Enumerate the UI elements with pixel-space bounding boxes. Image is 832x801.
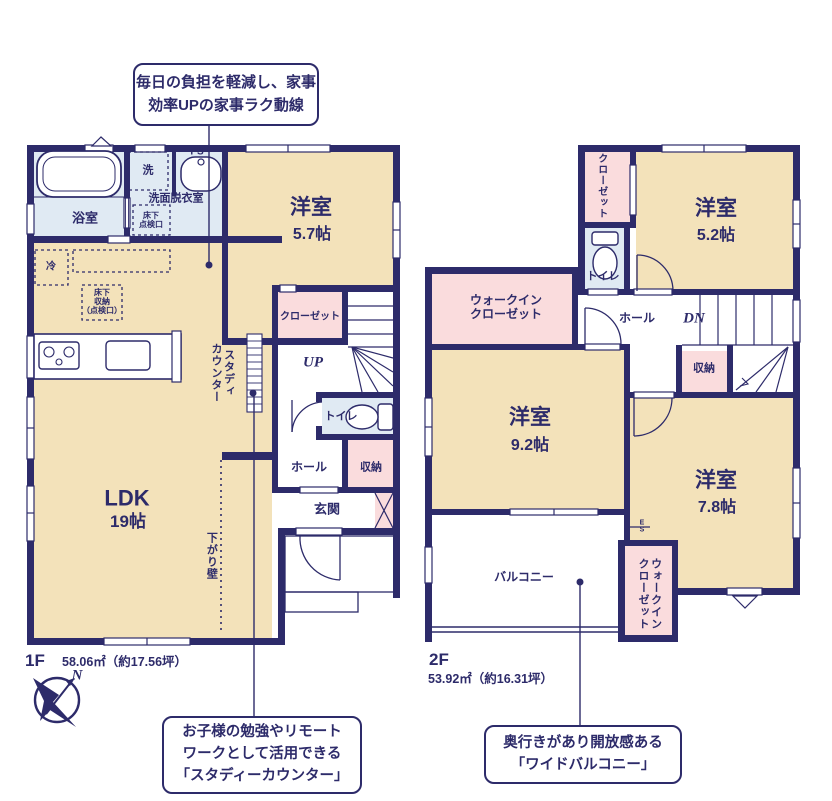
bedroom52-label: 洋室: [695, 197, 737, 221]
callout-study-line2: ワークとして活用できる: [183, 744, 342, 766]
compass-north-label: N: [72, 667, 83, 684]
underfloor-storage-label: 床下 収納 （点検口）: [82, 288, 122, 316]
floor2-name: 2F: [429, 650, 449, 670]
callout-housework-line2: 効率UPの家事ラク動線: [148, 95, 304, 118]
ldk-label: LDK: [104, 485, 149, 510]
underfloor-access-label: 床下 点検口: [139, 211, 163, 229]
callout-housework-line1: 毎日の負担を軽減し、家事: [136, 72, 316, 95]
storage1f-label: 収納: [360, 462, 382, 475]
floor1-stairs: [348, 306, 393, 392]
callout-balcony-line2: 「ワイドバルコニー」: [511, 755, 656, 777]
storage2f-label: 収納: [693, 363, 715, 376]
study-counter-label: スタディ カウンター: [209, 343, 234, 403]
stairs-dn-label: DN: [683, 310, 705, 327]
callout-study-line3: 「スタディーカウンター」: [176, 766, 349, 788]
wic-label: ウォークイン クローゼット: [470, 294, 542, 322]
callout-balcony-line1: 奥行きがあり開放感ある: [503, 733, 663, 755]
toilet2f-label: トイレ: [587, 271, 620, 284]
ps-label: PS: [190, 146, 203, 158]
callout-housework: 毎日の負担を軽減し、家事 効率UPの家事ラク動線: [133, 63, 319, 126]
bedroom52-size: 5.2帖: [697, 227, 735, 245]
hall2f-label: ホール: [619, 312, 655, 326]
bedroom57-label: 洋室: [290, 196, 332, 220]
bedroom78-size: 7.8帖: [698, 499, 736, 517]
callout-wide-balcony: 奥行きがあり開放感ある 「ワイドバルコニー」: [484, 725, 682, 784]
ldk-size: 19帖: [110, 512, 146, 532]
hall1f-label: ホール: [291, 461, 327, 475]
compass-icon: [33, 678, 79, 727]
lowered-wall-label: 下がり壁: [205, 532, 218, 580]
bath-label: 浴室: [72, 212, 98, 227]
laundry-room-label: 洗面脱衣室: [149, 193, 204, 206]
bedroom92-size: 9.2帖: [511, 437, 549, 455]
callout-study-line1: お子様の勉強やリモート: [182, 722, 342, 744]
closet1f-label: クローゼット: [280, 311, 340, 323]
floor1-name: 1F: [25, 651, 45, 671]
floor-plan-graphics: [0, 0, 832, 801]
fridge-label: 冷: [46, 261, 56, 273]
stairs-up-label: UP: [303, 354, 323, 371]
balcony-label: バルコニー: [494, 571, 554, 585]
bedroom92-label: 洋室: [509, 406, 551, 430]
floor2-area: 53.92㎡（約16.31坪）: [428, 672, 553, 686]
bedroom57-size: 5.7帖: [293, 226, 331, 244]
callout-study-counter: お子様の勉強やリモート ワークとして活用できる 「スタディーカウンター」: [162, 716, 362, 794]
wic2-label: ウォークイン クローゼット: [636, 558, 661, 630]
entrance-label: 玄関: [314, 503, 340, 518]
es-label: E S: [640, 520, 645, 535]
bedroom78-label: 洋室: [695, 469, 737, 493]
toilet1f-label: トイレ: [325, 411, 358, 424]
floor-plan-page: PS 洗 洗面脱衣室 床下 点検口 浴室 冷 床下 収納 （点検口） 洋室 5.…: [0, 0, 832, 801]
washer-label: 洗: [143, 165, 154, 178]
closet2f-label: クローゼット: [595, 153, 607, 219]
